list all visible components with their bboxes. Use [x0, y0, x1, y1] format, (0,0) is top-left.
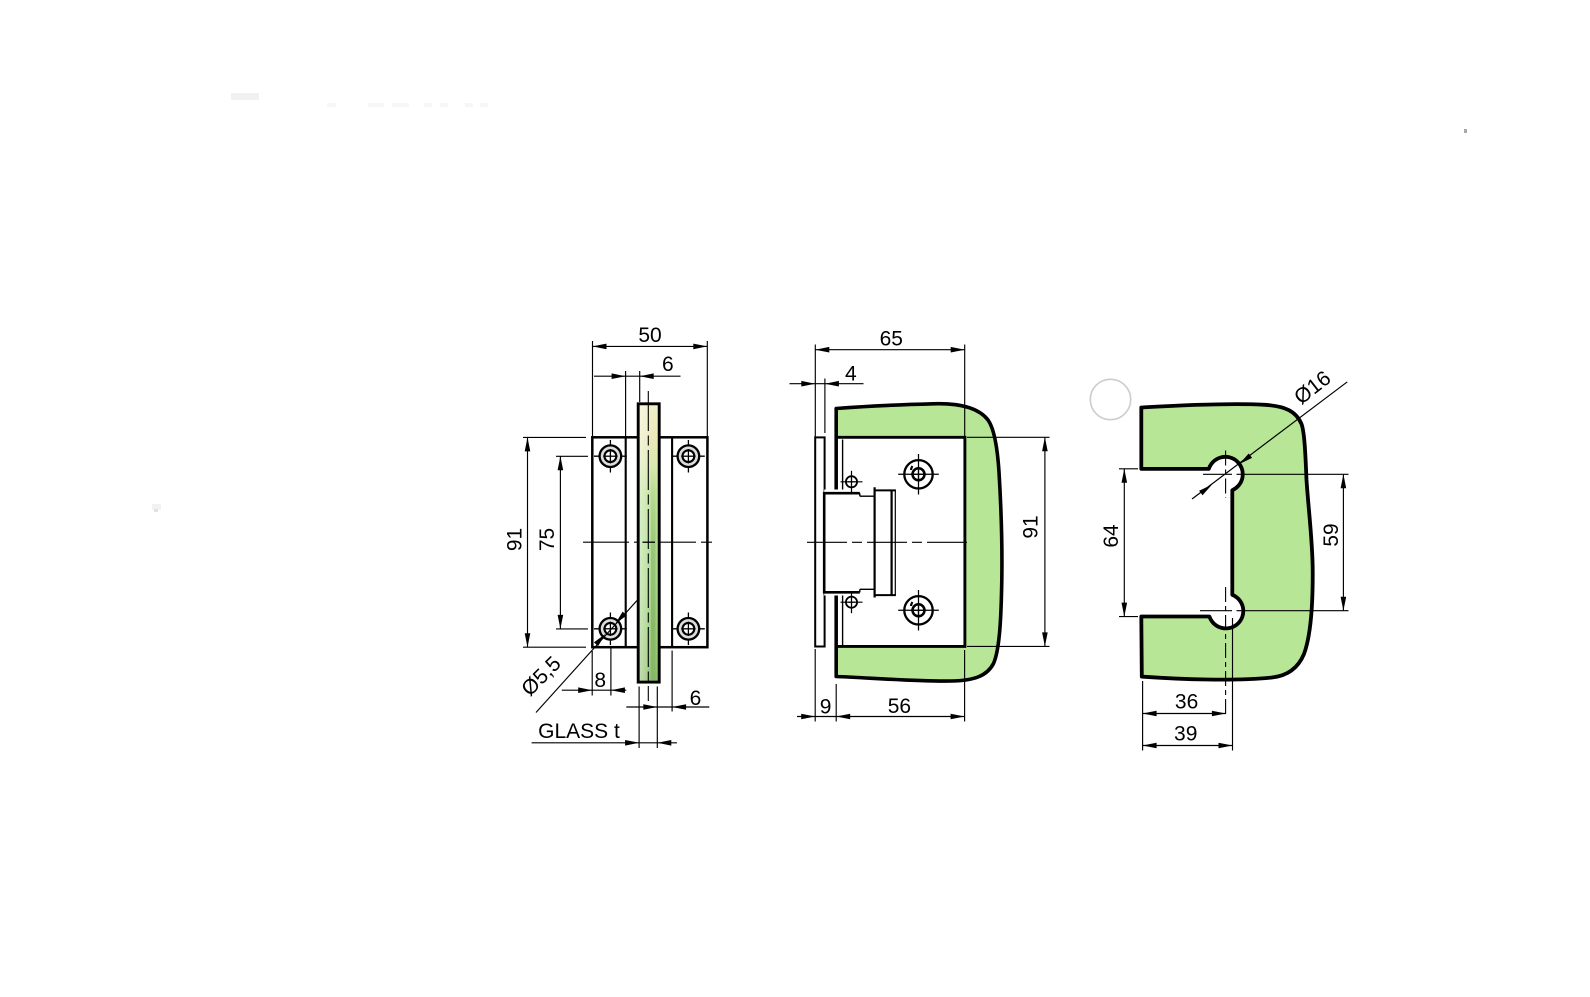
svg-text:9: 9: [820, 695, 832, 718]
svg-text:65: 65: [880, 327, 903, 350]
svg-text:6: 6: [662, 353, 674, 376]
svg-text:64: 64: [1100, 524, 1123, 548]
svg-text:GLASS t: GLASS t: [538, 720, 620, 743]
svg-text:39: 39: [1174, 722, 1197, 745]
svg-text:6: 6: [690, 687, 702, 710]
svg-text:Ø5,5: Ø5,5: [517, 652, 565, 700]
svg-text:59: 59: [1320, 523, 1343, 546]
svg-text:4: 4: [845, 363, 857, 386]
svg-text:75: 75: [536, 528, 559, 551]
svg-text:91: 91: [1019, 515, 1042, 538]
svg-text:56: 56: [888, 695, 911, 718]
svg-text:50: 50: [638, 324, 661, 347]
svg-text:8: 8: [594, 669, 606, 692]
svg-text:Ø16: Ø16: [1290, 367, 1335, 410]
svg-text:91: 91: [503, 528, 526, 551]
svg-text:36: 36: [1175, 691, 1198, 714]
